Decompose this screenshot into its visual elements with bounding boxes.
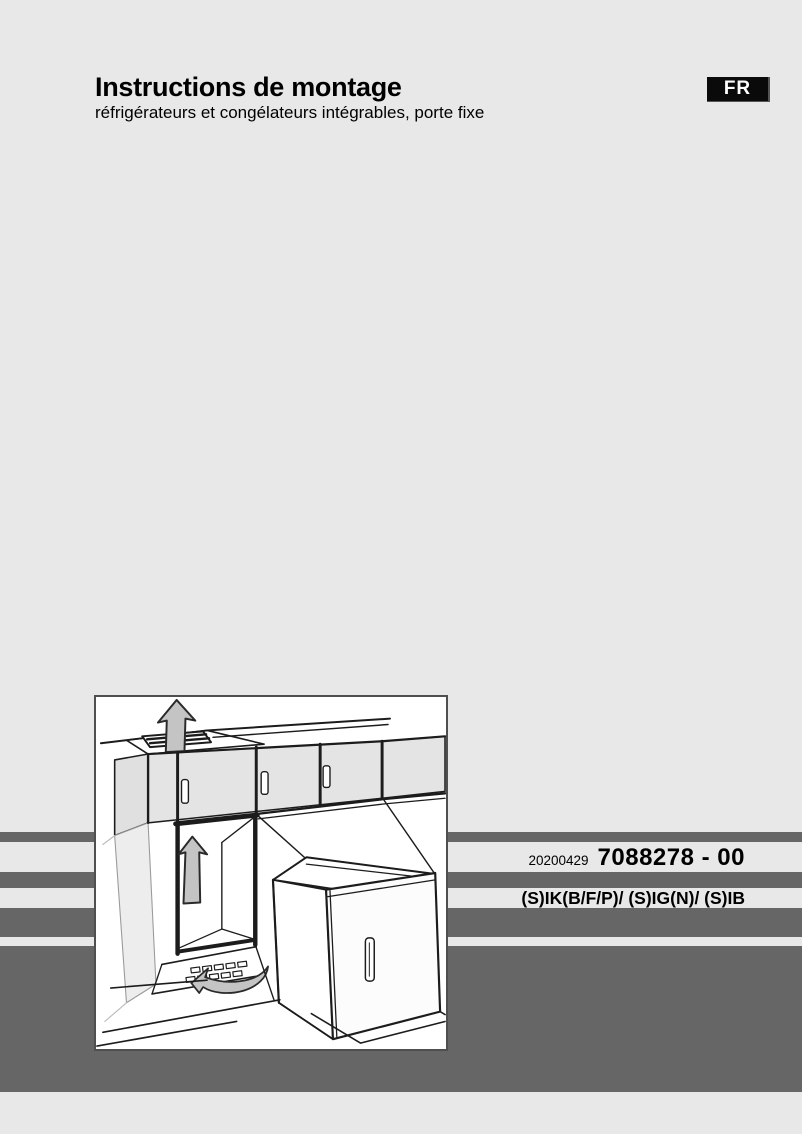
edition-date: 20200429 bbox=[528, 853, 588, 868]
appliance-with-open-door bbox=[273, 857, 440, 1039]
installation-illustration-frame bbox=[94, 695, 448, 1051]
document-number: 7088278 - 00 bbox=[598, 844, 745, 872]
model-designations: (S)IK(B/F/P)/ (S)IG(N)/ (S)IB bbox=[521, 888, 745, 908]
page-title: Instructions de montage bbox=[95, 72, 402, 102]
manual-cover-page: Instructions de montage réfrigérateurs e… bbox=[0, 0, 802, 1134]
edition-row: 20200429 7088278 - 00 bbox=[528, 844, 745, 870]
page-subtitle: réfrigérateurs et congélateurs intégrabl… bbox=[95, 103, 484, 123]
cabinet-side-panel bbox=[115, 754, 148, 836]
language-badge: FR bbox=[707, 77, 770, 102]
installation-illustration bbox=[96, 697, 446, 1049]
airflow-up-arrow-niche bbox=[179, 837, 208, 904]
